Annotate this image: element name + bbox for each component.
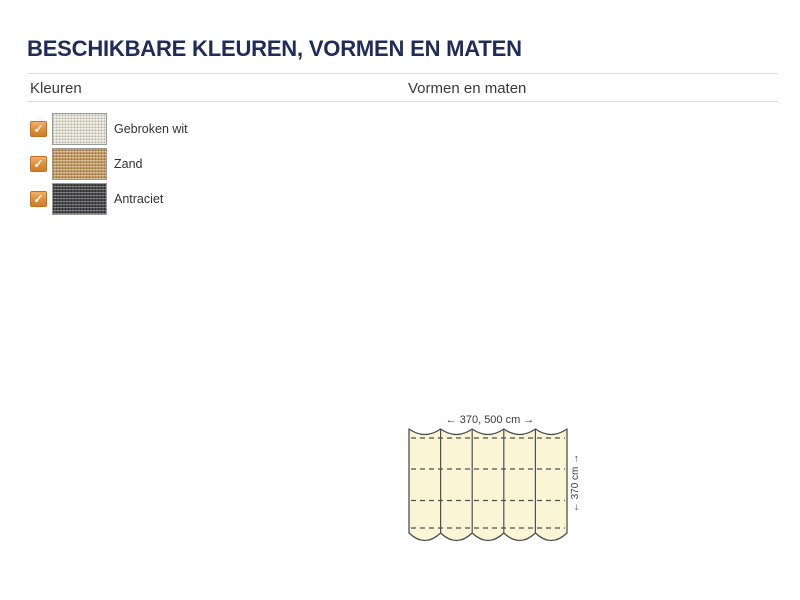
- column-header-kleuren: Kleuren: [30, 80, 82, 97]
- header-divider-top: [27, 73, 778, 74]
- harmonica-cloth-diagram: ← 370, 500 cm → ← 370 cm →: [400, 398, 595, 556]
- color-swatch-zand: [52, 148, 107, 180]
- checkbox-checked-icon[interactable]: ✓: [30, 191, 47, 207]
- cloth-outline: [409, 429, 567, 541]
- header-divider-bottom: [27, 101, 778, 102]
- color-row-gebroken-wit: ✓ Gebroken wit: [30, 112, 370, 145]
- checkbox-checked-icon[interactable]: ✓: [30, 156, 47, 172]
- section-title: BESCHIKBARE KLEUREN, VORMEN EN MATEN: [27, 36, 522, 62]
- color-label: Gebroken wit: [114, 122, 188, 136]
- color-row-antraciet: ✓ Antraciet: [30, 182, 370, 215]
- height-dimension-label: ← 370 cm →: [570, 454, 581, 512]
- color-label: Zand: [114, 157, 143, 171]
- width-dimension-label: ← 370, 500 cm →: [446, 414, 535, 426]
- color-row-zand: ✓ Zand: [30, 147, 370, 180]
- size-diagram: ← 370, 500 cm → ← 370 cm →: [400, 398, 595, 556]
- color-swatch-gebroken-wit: [52, 113, 107, 145]
- column-header-vormen-en-maten: Vormen en maten: [408, 80, 526, 97]
- color-swatch-antraciet: [52, 183, 107, 215]
- checkbox-checked-icon[interactable]: ✓: [30, 121, 47, 137]
- color-label: Antraciet: [114, 192, 163, 206]
- available-colors-shapes-section: BESCHIKBARE KLEUREN, VORMEN EN MATEN Kle…: [0, 0, 800, 600]
